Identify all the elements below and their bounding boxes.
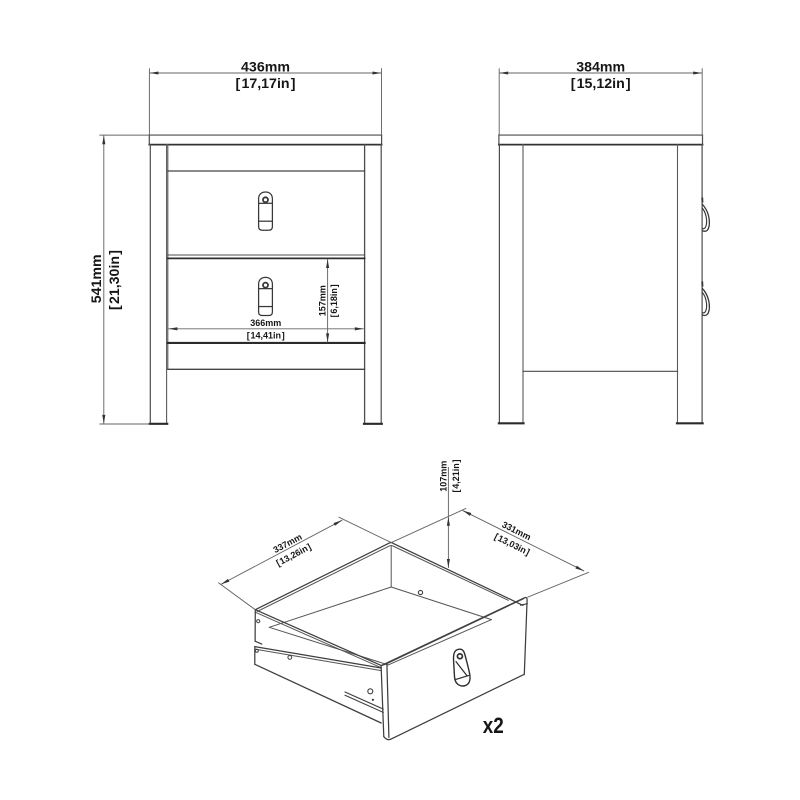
svg-text:541mm: 541mm bbox=[89, 254, 105, 303]
svg-text:[ 21,30in ]: [ 21,30in ] bbox=[107, 250, 123, 310]
svg-text:384mm: 384mm bbox=[576, 60, 625, 76]
svg-text:[ 17,17in ]: [ 17,17in ] bbox=[236, 76, 296, 92]
svg-text:107mm: 107mm bbox=[439, 461, 449, 492]
svg-text:[ 14,41in ]: [ 14,41in ] bbox=[247, 331, 285, 341]
svg-text:[ 15,12in ]: [ 15,12in ] bbox=[571, 76, 631, 92]
svg-text:[ 4,21in ]: [ 4,21in ] bbox=[451, 459, 461, 492]
svg-text:[ 6,18in ]: [ 6,18in ] bbox=[329, 284, 339, 317]
svg-text:x2: x2 bbox=[483, 713, 504, 738]
svg-text:157mm: 157mm bbox=[317, 285, 327, 316]
svg-text:436mm: 436mm bbox=[241, 60, 290, 76]
svg-text:366mm: 366mm bbox=[250, 318, 281, 328]
